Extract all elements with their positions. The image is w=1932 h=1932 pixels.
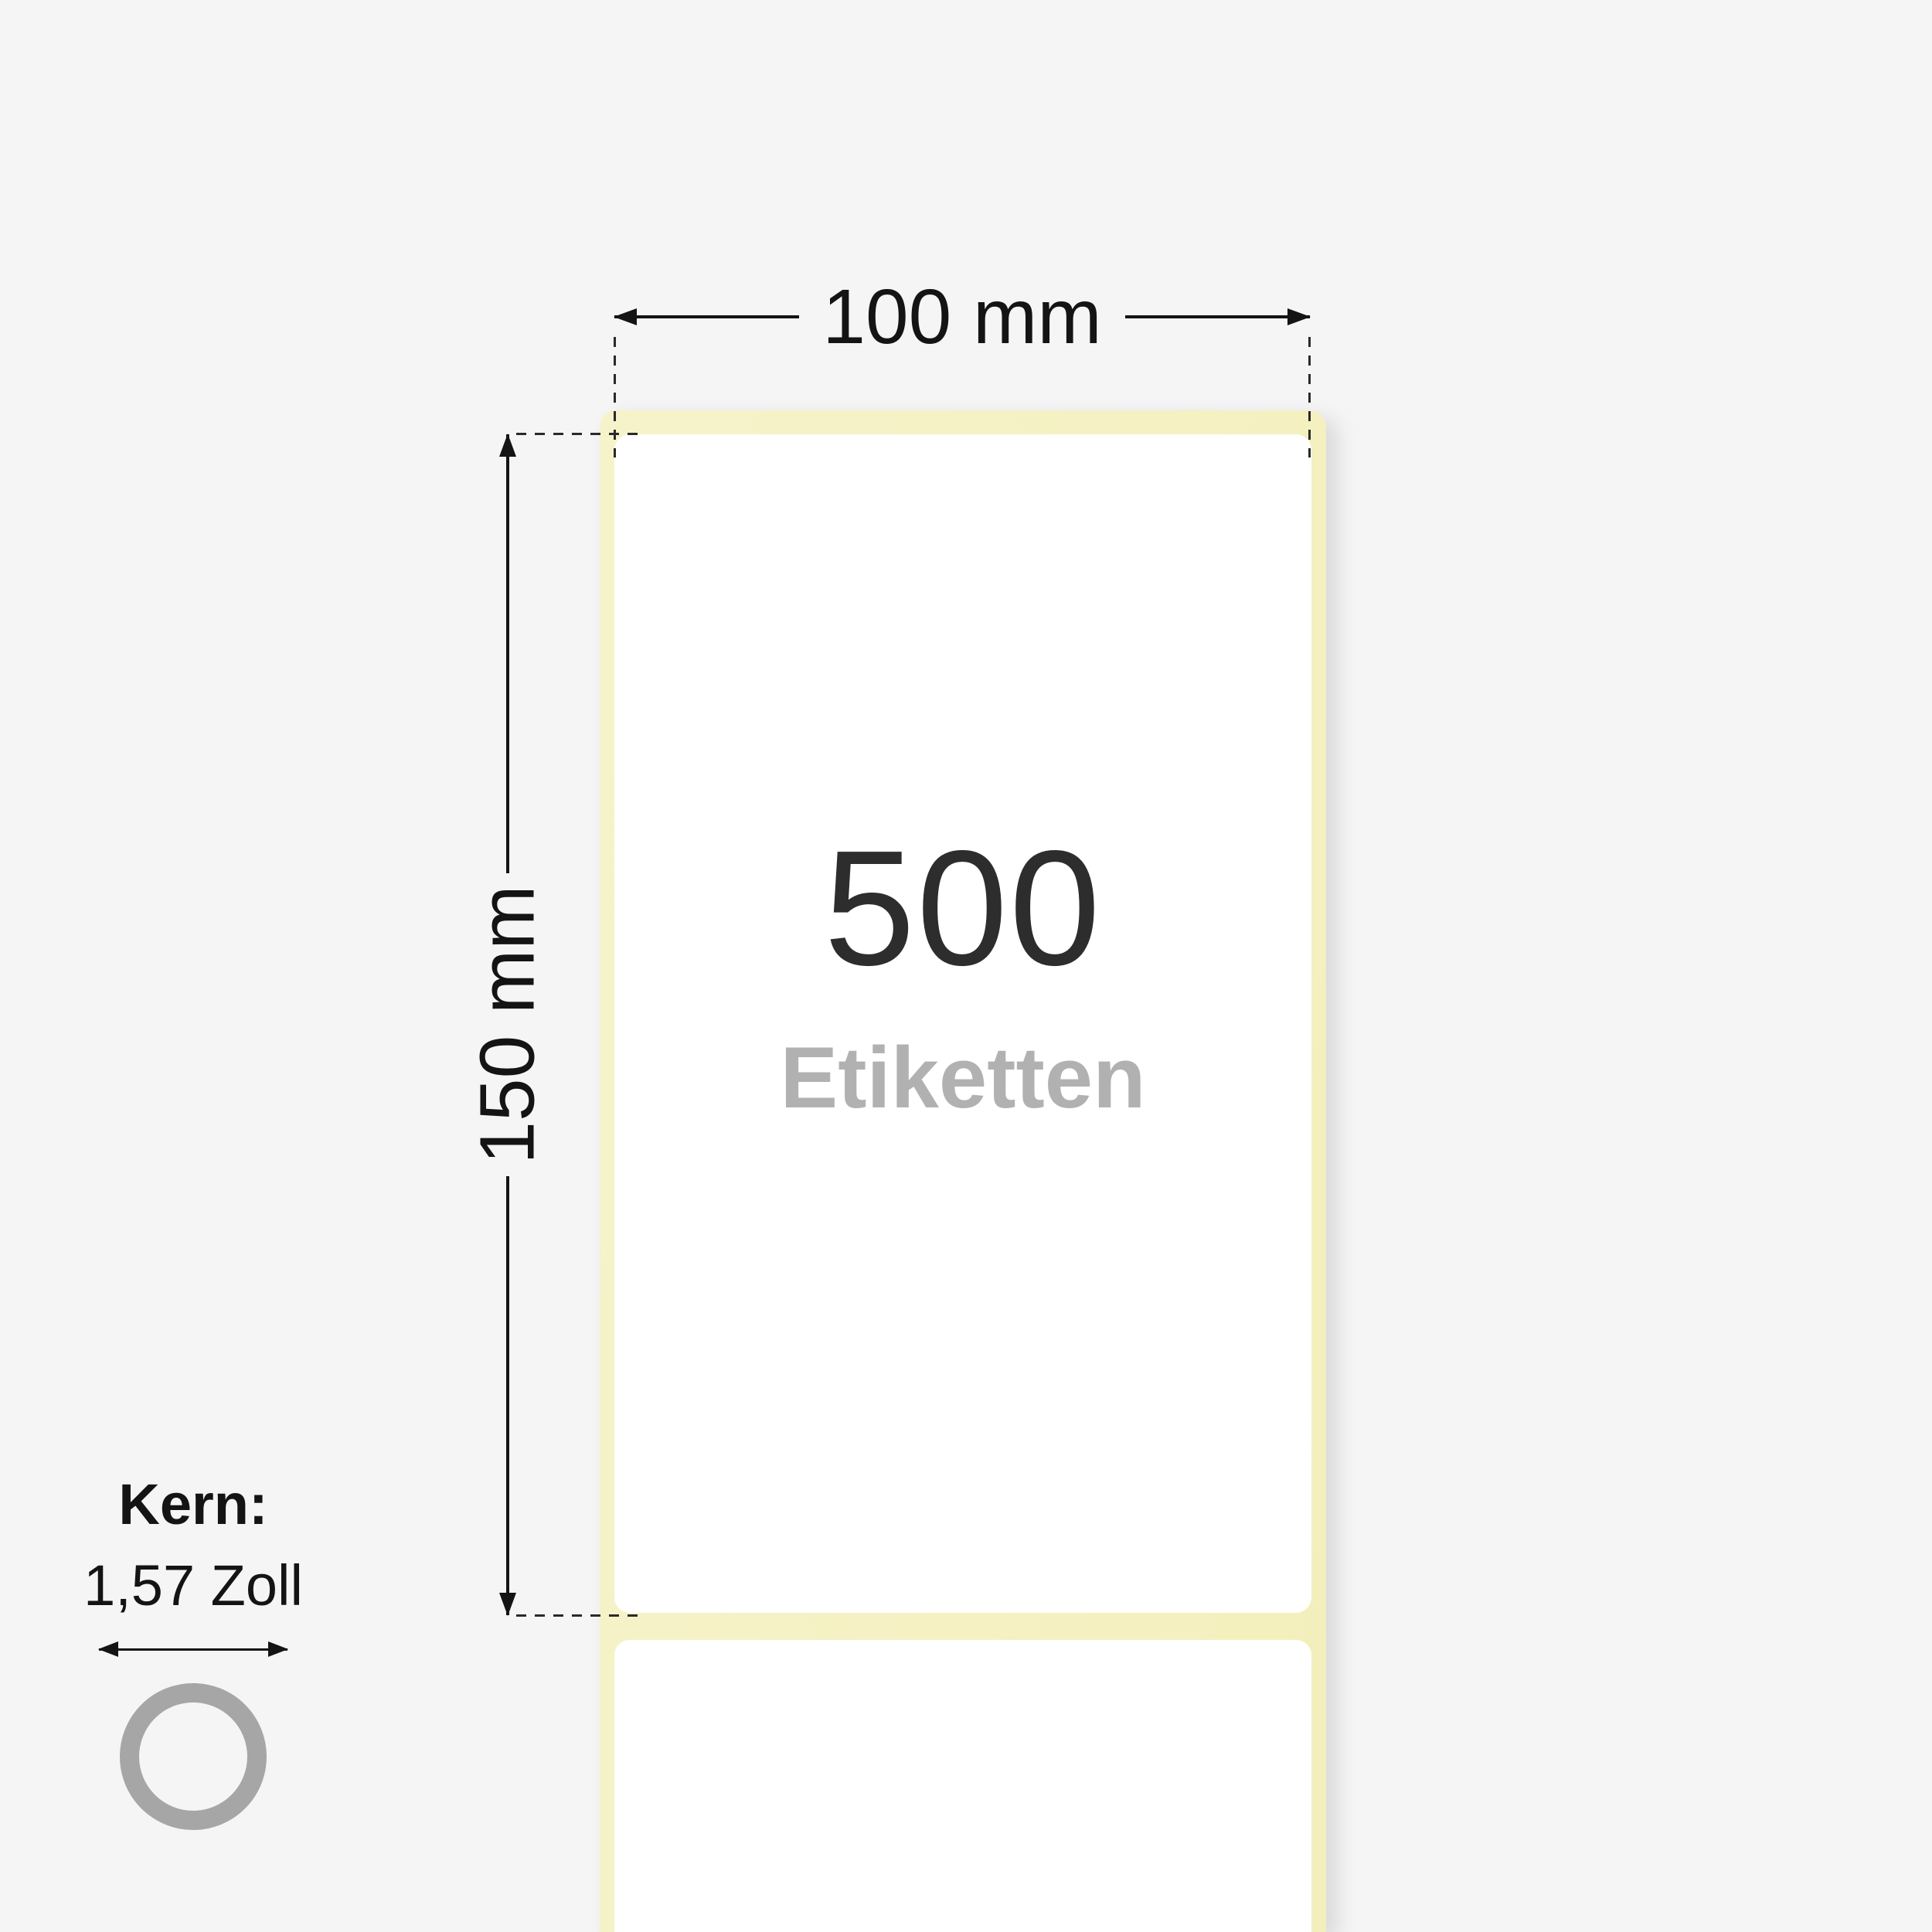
width-dimension-label: 100 mm (822, 278, 1101, 355)
core-diameter-arrow-icon (99, 1648, 287, 1651)
core-spec: Kern: 1,57 Zoll (39, 1473, 348, 1830)
label-count: 500 (824, 826, 1102, 990)
core-size: 1,57 Zoll (83, 1554, 303, 1617)
core-ring-icon (120, 1683, 267, 1830)
label-count-unit: Etiketten (781, 1035, 1146, 1121)
core-title: Kern: (118, 1473, 267, 1536)
height-arrow-up-icon (506, 434, 509, 873)
label-content: 500 Etiketten (781, 826, 1146, 1121)
label-roll-diagram: 500 Etiketten 100 mm 150 mm Kern: 1,57 Z… (0, 0, 1932, 1932)
label-roll-liner: 500 Etiketten (600, 410, 1326, 1932)
label-front: 500 Etiketten (614, 434, 1311, 1613)
width-arrow-right-icon (1125, 315, 1310, 318)
label-next (614, 1640, 1311, 1932)
width-guide-dash-left (614, 337, 616, 457)
width-dimension: 100 mm (614, 280, 1310, 354)
height-dimension-label-box: 150 mm (464, 893, 552, 1156)
height-arrow-down-icon (506, 1176, 509, 1615)
width-arrow-left-icon (614, 315, 799, 318)
height-dimension-label: 150 mm (469, 885, 546, 1164)
width-guide-dash-right (1308, 337, 1311, 457)
height-dimension: 150 mm (464, 434, 552, 1615)
